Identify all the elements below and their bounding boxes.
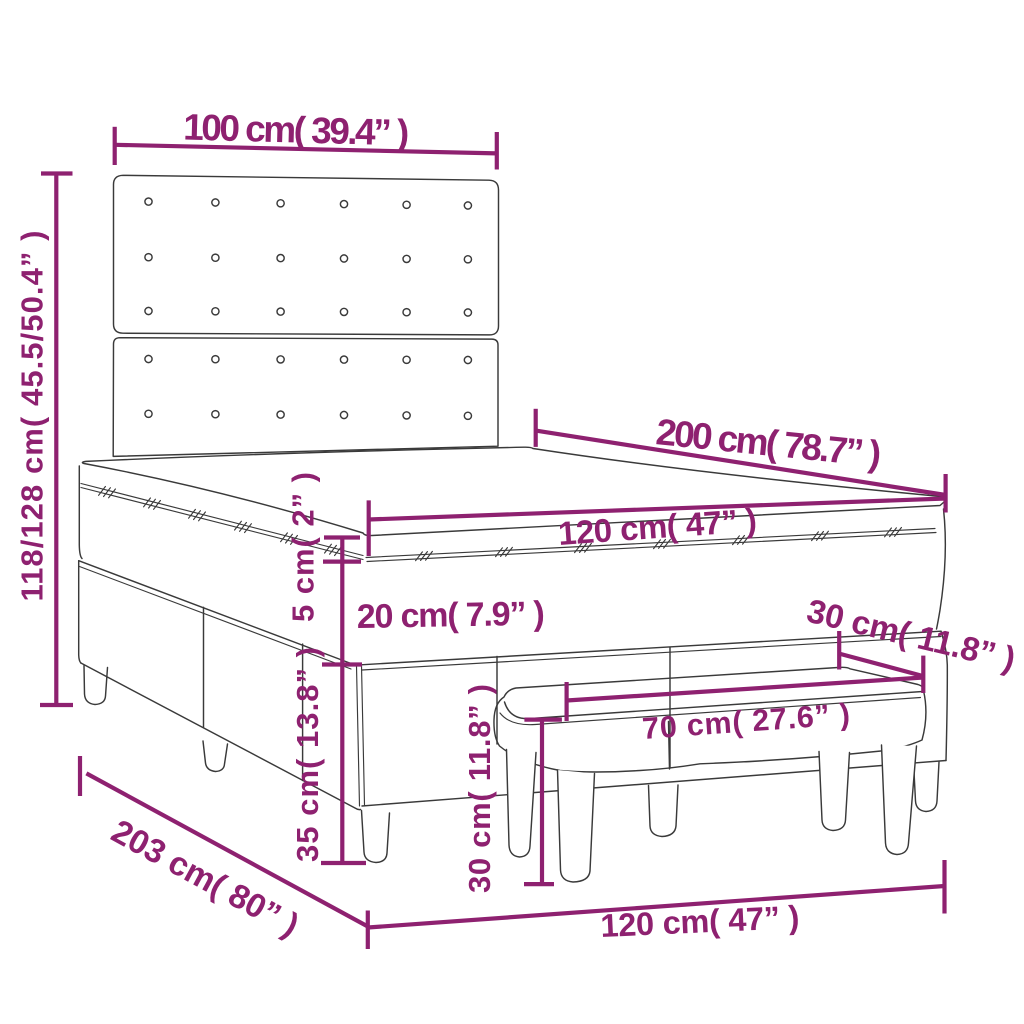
svg-text:70 cm( 27.6” ): 70 cm( 27.6” ) [641, 697, 851, 746]
svg-text:5 cm( 2” ): 5 cm( 2” ) [286, 472, 321, 622]
svg-text:120 cm( 47” ): 120 cm( 47” ) [600, 899, 800, 944]
svg-text:120 cm( 47” ): 120 cm( 47” ) [557, 501, 758, 552]
svg-text:35 cm( 13.8” ): 35 cm( 13.8” ) [290, 647, 325, 862]
svg-text:118/128 cm( 45.5/50.4” ): 118/128 cm( 45.5/50.4” ) [15, 231, 50, 602]
svg-text:30 cm( 11.8” ): 30 cm( 11.8” ) [462, 684, 497, 893]
svg-text:203 cm( 80” ): 203 cm( 80” ) [105, 813, 304, 945]
svg-text:100 cm( 39.4” ): 100 cm( 39.4” ) [183, 107, 410, 154]
svg-text:30 cm( 11.8” ): 30 cm( 11.8” ) [803, 593, 1019, 679]
svg-text:20 cm( 7.9” ): 20 cm( 7.9” ) [356, 595, 545, 636]
